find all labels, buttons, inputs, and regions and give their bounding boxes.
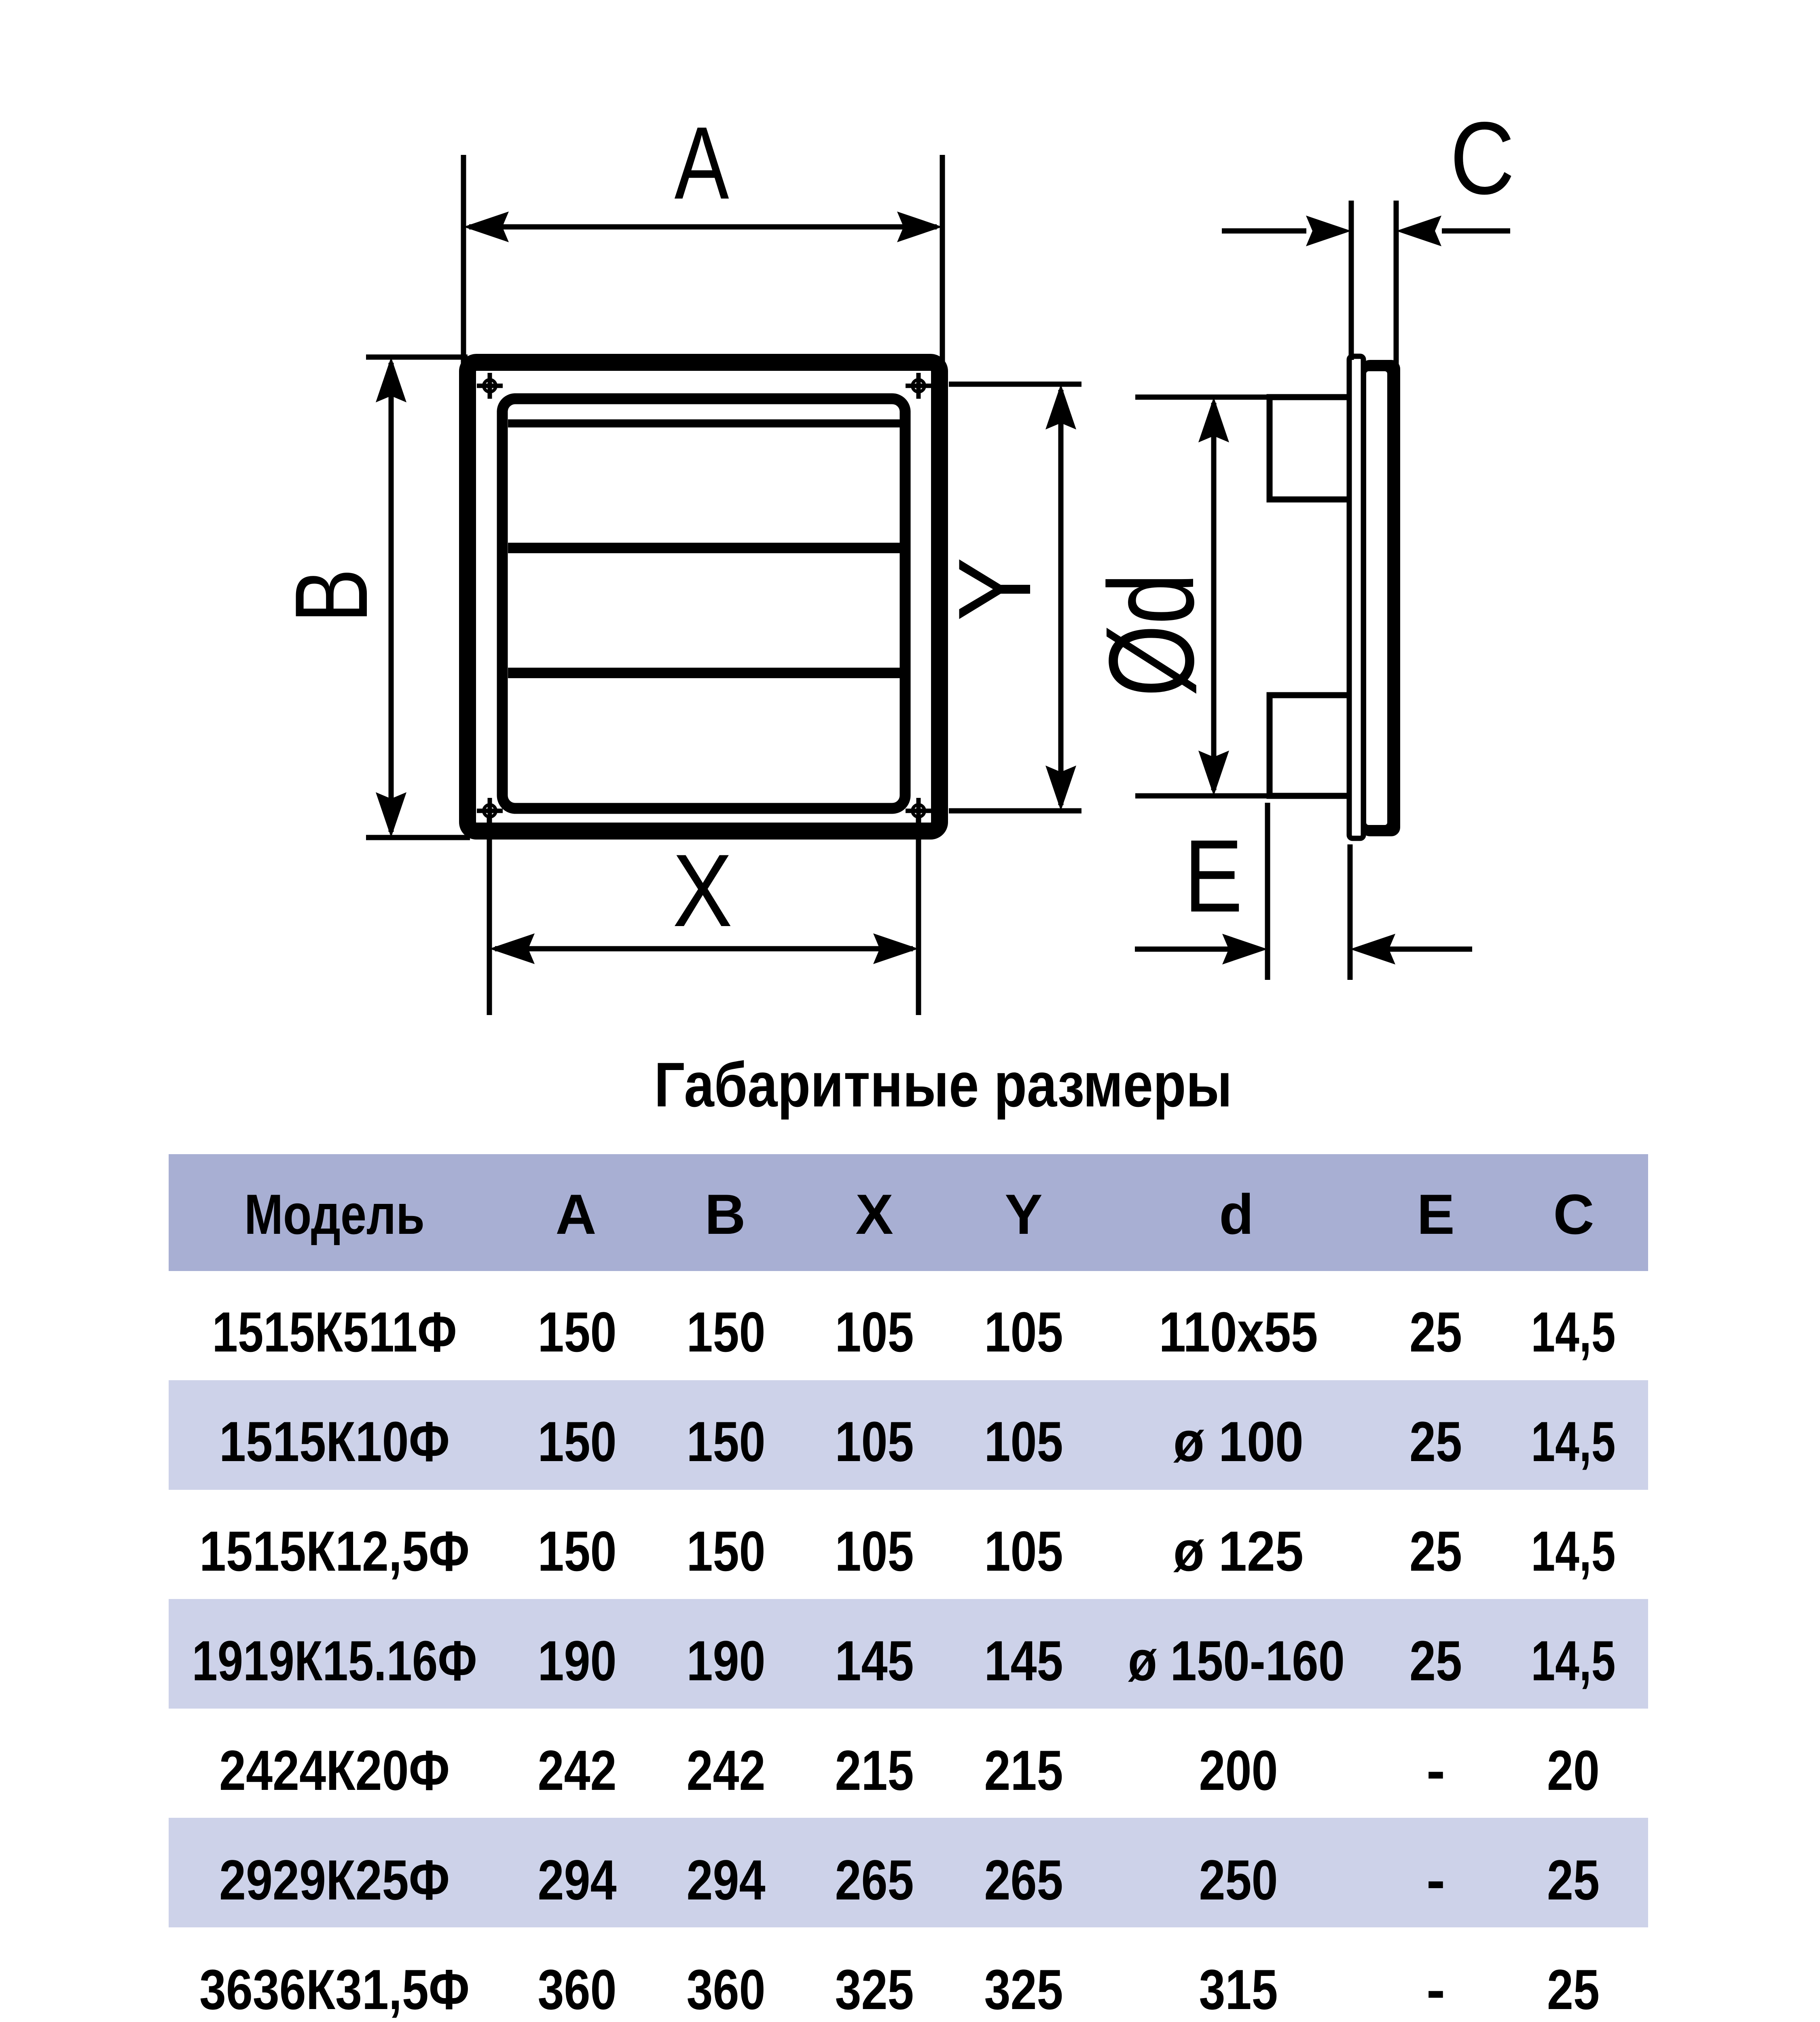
svg-text:1515К10Ф: 1515К10Ф (219, 1410, 450, 1473)
svg-text:215: 215 (984, 1739, 1063, 1802)
svg-text:1919К15.16Ф: 1919К15.16Ф (192, 1629, 477, 1692)
svg-text:X: X (673, 833, 732, 948)
svg-text:325: 325 (835, 1958, 914, 2021)
svg-text:1515К511Ф: 1515К511Ф (212, 1300, 457, 1364)
svg-text:Модель: Модель (244, 1182, 425, 1246)
svg-text:14,5: 14,5 (1531, 1300, 1616, 1364)
svg-text:A: A (555, 1182, 596, 1246)
svg-text:250: 250 (1199, 1848, 1278, 1912)
svg-text:-: - (1426, 1958, 1445, 2021)
svg-text:360: 360 (687, 1958, 766, 2021)
svg-text:105: 105 (835, 1300, 914, 1364)
svg-text:190: 190 (538, 1629, 617, 1692)
svg-text:110x55: 110x55 (1159, 1300, 1318, 1364)
svg-text:265: 265 (835, 1848, 914, 1912)
svg-text:150: 150 (687, 1300, 766, 1364)
svg-text:-: - (1426, 1739, 1445, 1802)
svg-text:105: 105 (835, 1519, 914, 1583)
svg-text:Y: Y (937, 557, 1052, 621)
svg-text:200: 200 (1199, 1739, 1278, 1802)
svg-text:ø 150-160: ø 150-160 (1128, 1629, 1345, 1692)
svg-text:E: E (1184, 819, 1243, 934)
svg-text:190: 190 (687, 1629, 766, 1692)
svg-text:105: 105 (984, 1410, 1063, 1473)
svg-text:150: 150 (687, 1410, 766, 1473)
svg-text:150: 150 (538, 1300, 617, 1364)
svg-text:14,5: 14,5 (1531, 1410, 1616, 1473)
svg-text:145: 145 (835, 1629, 914, 1692)
svg-text:294: 294 (687, 1848, 766, 1912)
svg-text:145: 145 (984, 1629, 1063, 1692)
svg-text:25: 25 (1409, 1410, 1462, 1473)
svg-text:14,5: 14,5 (1531, 1519, 1616, 1583)
svg-text:B: B (705, 1182, 745, 1246)
svg-text:25: 25 (1409, 1519, 1462, 1583)
svg-text:20: 20 (1547, 1739, 1600, 1802)
svg-text:X: X (855, 1182, 893, 1246)
svg-text:3636К31,5Ф: 3636К31,5Ф (199, 1958, 470, 2021)
svg-text:150: 150 (538, 1519, 617, 1583)
svg-text:150: 150 (538, 1410, 617, 1473)
svg-text:C: C (1553, 1182, 1594, 1246)
svg-text:215: 215 (835, 1739, 914, 1802)
svg-text:Ød: Ød (1084, 573, 1219, 697)
svg-text:325: 325 (984, 1958, 1063, 2021)
svg-text:Габаритные размеры: Габаритные размеры (654, 1050, 1232, 1120)
svg-text:C: C (1450, 101, 1515, 216)
svg-text:2424К20Ф: 2424К20Ф (219, 1739, 450, 1802)
svg-text:E: E (1417, 1182, 1454, 1246)
svg-text:25: 25 (1547, 1958, 1600, 2021)
svg-text:ø 125: ø 125 (1173, 1519, 1304, 1583)
svg-text:150: 150 (687, 1519, 766, 1583)
svg-text:Y: Y (1005, 1182, 1042, 1246)
svg-text:14,5: 14,5 (1531, 1629, 1616, 1692)
svg-text:ø 100: ø 100 (1173, 1410, 1304, 1473)
svg-text:2929К25Ф: 2929К25Ф (219, 1848, 450, 1912)
svg-text:d: d (1219, 1182, 1254, 1246)
svg-text:105: 105 (984, 1300, 1063, 1364)
svg-text:25: 25 (1547, 1848, 1600, 1912)
svg-text:1515К12,5Ф: 1515К12,5Ф (199, 1519, 470, 1583)
svg-text:242: 242 (687, 1739, 766, 1802)
svg-text:A: A (675, 106, 729, 221)
svg-text:-: - (1426, 1848, 1445, 1912)
svg-text:105: 105 (984, 1519, 1063, 1583)
svg-text:B: B (274, 569, 389, 623)
svg-text:294: 294 (538, 1848, 617, 1912)
svg-text:25: 25 (1409, 1629, 1462, 1692)
svg-text:265: 265 (984, 1848, 1063, 1912)
svg-text:315: 315 (1199, 1958, 1278, 2021)
svg-text:25: 25 (1409, 1300, 1462, 1364)
svg-text:242: 242 (538, 1739, 617, 1802)
svg-text:360: 360 (538, 1958, 617, 2021)
svg-text:105: 105 (835, 1410, 914, 1473)
